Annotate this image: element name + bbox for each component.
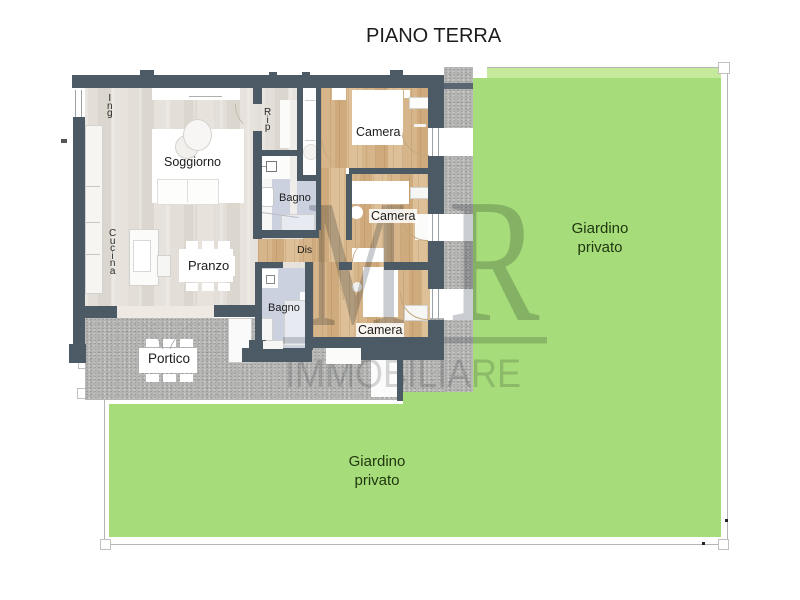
svg-text:R: R — [448, 164, 540, 360]
